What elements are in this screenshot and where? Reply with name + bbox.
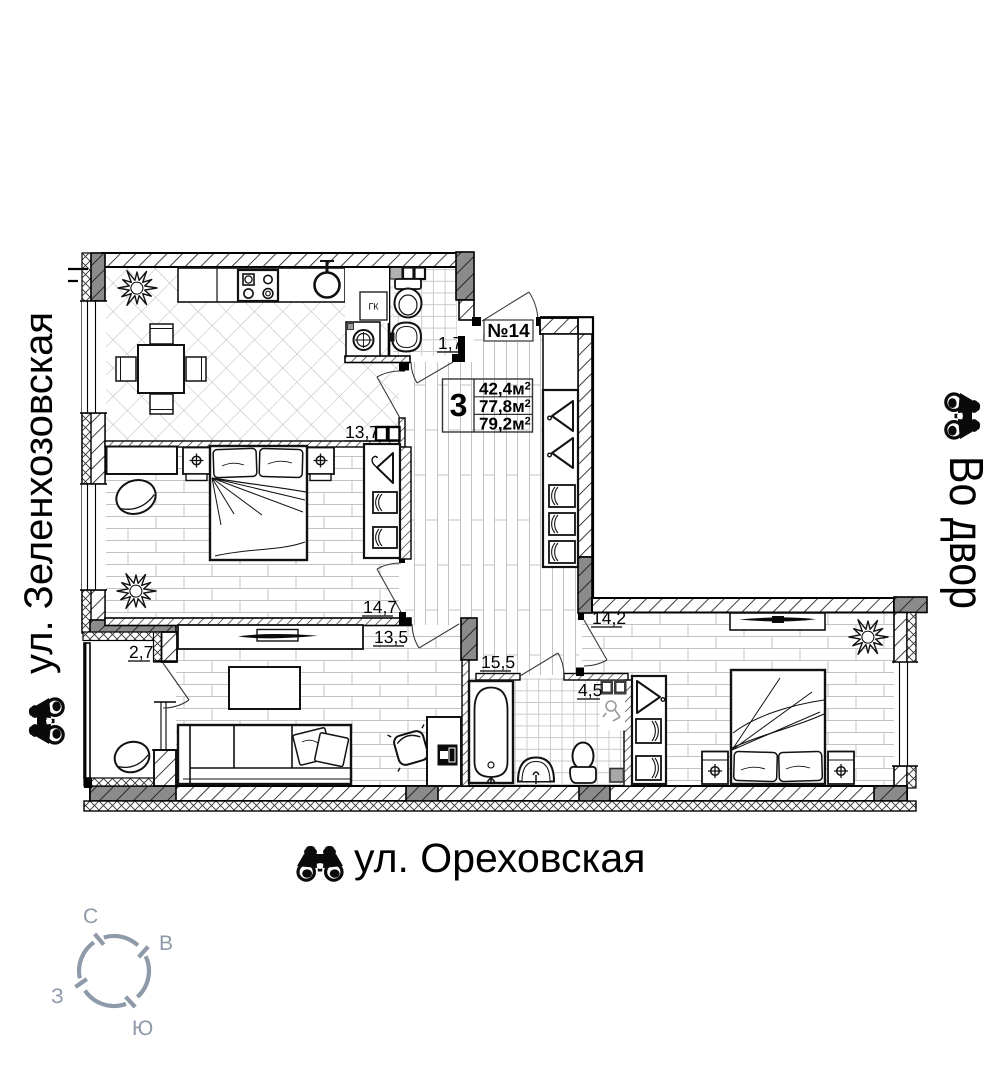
svg-text:14,7: 14,7: [363, 597, 397, 617]
svg-text:1,7: 1,7: [438, 333, 462, 353]
svg-text:В: В: [159, 932, 173, 955]
svg-text:14,2: 14,2: [592, 608, 626, 628]
svg-text:77,8м2: 77,8м2: [479, 397, 531, 416]
svg-text:С: С: [83, 905, 98, 928]
svg-text:ГК: ГК: [368, 302, 379, 312]
svg-text:ул. Ореховская: ул. Ореховская: [354, 835, 645, 881]
svg-text:3: 3: [450, 387, 468, 423]
svg-text:42,4м2: 42,4м2: [479, 380, 531, 399]
svg-text:2,7: 2,7: [129, 642, 153, 662]
svg-text:13,7: 13,7: [345, 422, 379, 442]
svg-text:№14: №14: [487, 321, 530, 342]
svg-text:15,5: 15,5: [481, 652, 515, 672]
svg-text:Ю: Ю: [132, 1017, 153, 1040]
svg-text:З: З: [51, 985, 64, 1008]
svg-text:ул. Зеленхозовская: ул. Зеленхозовская: [17, 312, 61, 674]
svg-text:13,5: 13,5: [374, 627, 408, 647]
svg-text:79,2м2: 79,2м2: [479, 415, 531, 434]
svg-text:4,5: 4,5: [578, 680, 602, 700]
svg-text:Во двор: Во двор: [939, 456, 992, 609]
